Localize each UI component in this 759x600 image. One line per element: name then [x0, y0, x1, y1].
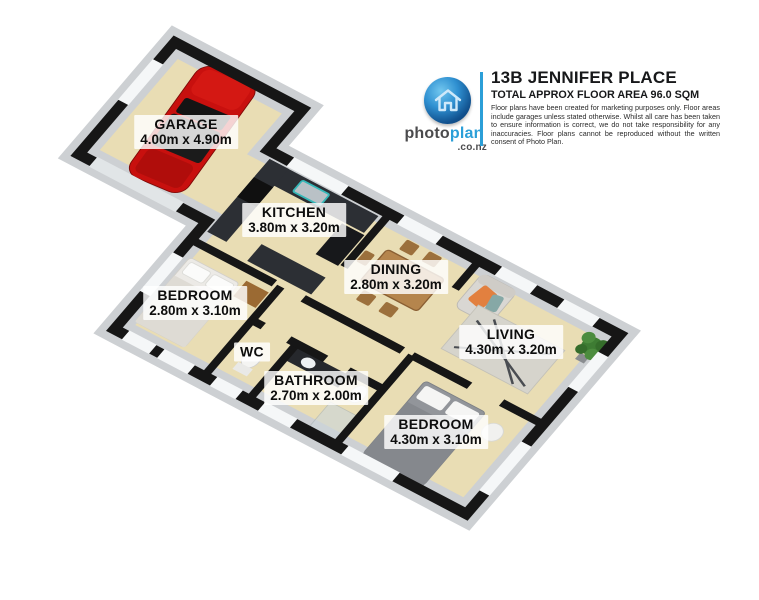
- room-label-wc: WC: [234, 343, 270, 362]
- floor-area-subtitle: TOTAL APPROX FLOOR AREA 96.0 SQM: [491, 89, 699, 101]
- room-label-kitchen: KITCHEN 3.80m x 3.20m: [242, 203, 346, 237]
- room-label-garage: GARAGE 4.00m x 4.90m: [134, 115, 238, 149]
- brand-wordmark: photoplan .co.nz: [398, 126, 490, 153]
- floorplan-page: GARAGE 4.00m x 4.90m KITCHEN 3.80m x 3.2…: [0, 0, 759, 600]
- room-label-living: LIVING 4.30m x 3.20m: [459, 325, 563, 359]
- room-label-bathroom: BATHROOM 2.70m x 2.00m: [264, 371, 368, 405]
- house-icon: [434, 88, 462, 114]
- room-label-bedroom-2: BEDROOM 4.30m x 3.10m: [384, 415, 488, 449]
- disclaimer-text: Floor plans have been created for market…: [491, 104, 720, 147]
- brand-plan: plan: [450, 125, 484, 142]
- brand-suffix: .co.nz: [398, 142, 490, 153]
- page-title: 13B JENNIFER PLACE: [491, 68, 677, 87]
- header-divider: [480, 72, 483, 146]
- photoplan-logo: [424, 77, 471, 124]
- room-label-dining: DINING 2.80m x 3.20m: [344, 260, 448, 294]
- brand-photo: photo: [404, 125, 449, 142]
- room-label-bedroom-1: BEDROOM 2.80m x 3.10m: [143, 286, 247, 320]
